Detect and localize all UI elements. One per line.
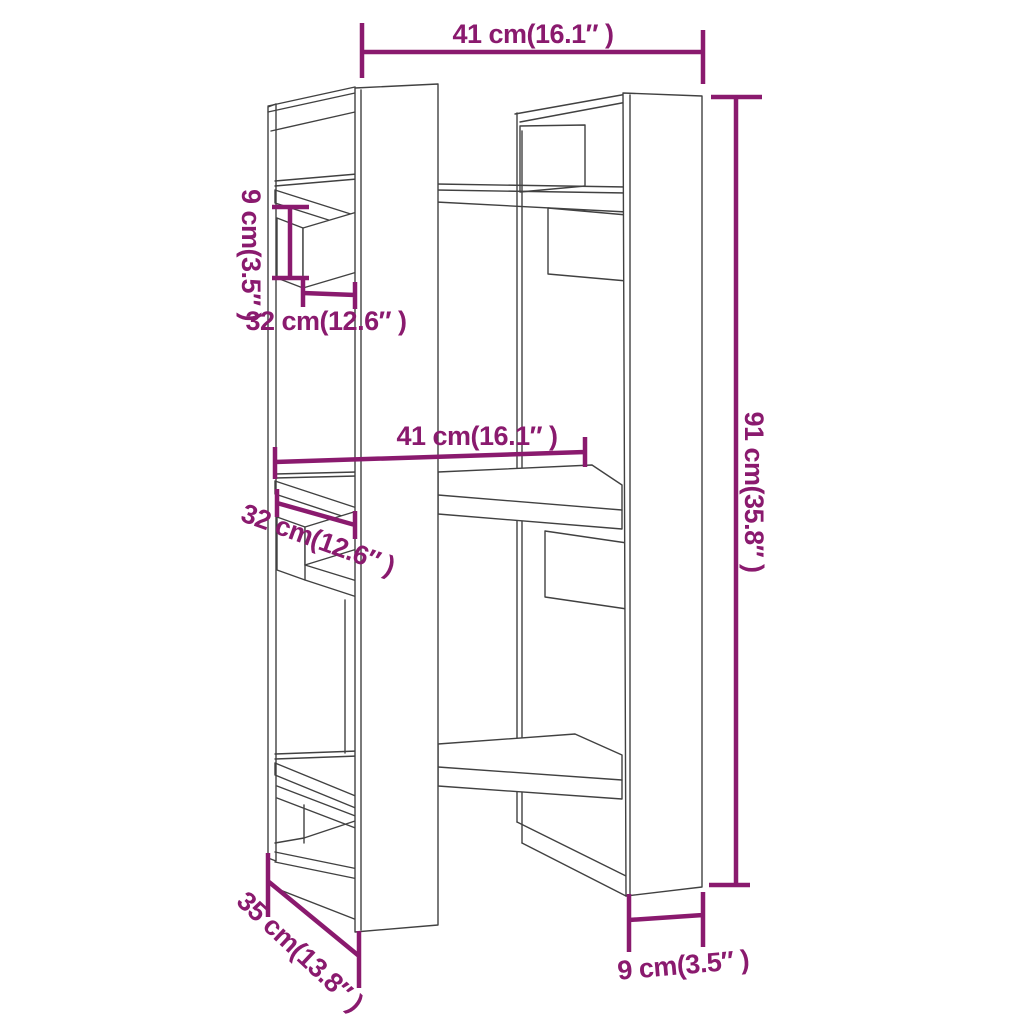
middle-right-shelf (438, 465, 622, 529)
dimension-top-width-label: 41 cm(16.1″ ) (452, 19, 613, 49)
dimension-overall-height: 91 cm(35.8″ ) (709, 97, 769, 885)
center-divider-panel (355, 84, 438, 932)
middle-right-rail (545, 531, 627, 609)
bottom-left-shelf (275, 751, 358, 809)
furniture-drawing (268, 84, 702, 932)
product-dimension-diagram: 41 cm(16.1″ ) 9 cm(3.5″ ) 32 cm(12.6″ ) … (0, 0, 1024, 1024)
dimension-overall-height-label: 91 cm(35.8″ ) (739, 411, 769, 572)
dimension-bottom-right-height-label: 9 cm(3.5″ ) (616, 944, 750, 985)
bottom-right-shelf (438, 734, 622, 799)
upper-back-panel (520, 125, 585, 192)
bottom-right-floor-rail (517, 822, 626, 896)
dimension-upper-rail-height-label: 9 cm(3.5″ ) (236, 189, 266, 321)
diagram-canvas: 41 cm(16.1″ ) 9 cm(3.5″ ) 32 cm(12.6″ ) … (0, 0, 1024, 1024)
top-right-board (515, 94, 627, 122)
dimension-upper-rail-width-label: 32 cm(12.6″ ) (245, 306, 406, 336)
right-side-panel (623, 93, 702, 896)
dimension-top-width: 41 cm(16.1″ ) (362, 19, 703, 84)
dimension-bottom-right-height: 9 cm(3.5″ ) (616, 892, 750, 986)
bottom-left-floor-rail (275, 820, 358, 920)
dimension-middle-width-label: 41 cm(16.1″ ) (396, 421, 557, 451)
upper-right-rail (548, 208, 627, 281)
top-left-board (268, 87, 355, 131)
